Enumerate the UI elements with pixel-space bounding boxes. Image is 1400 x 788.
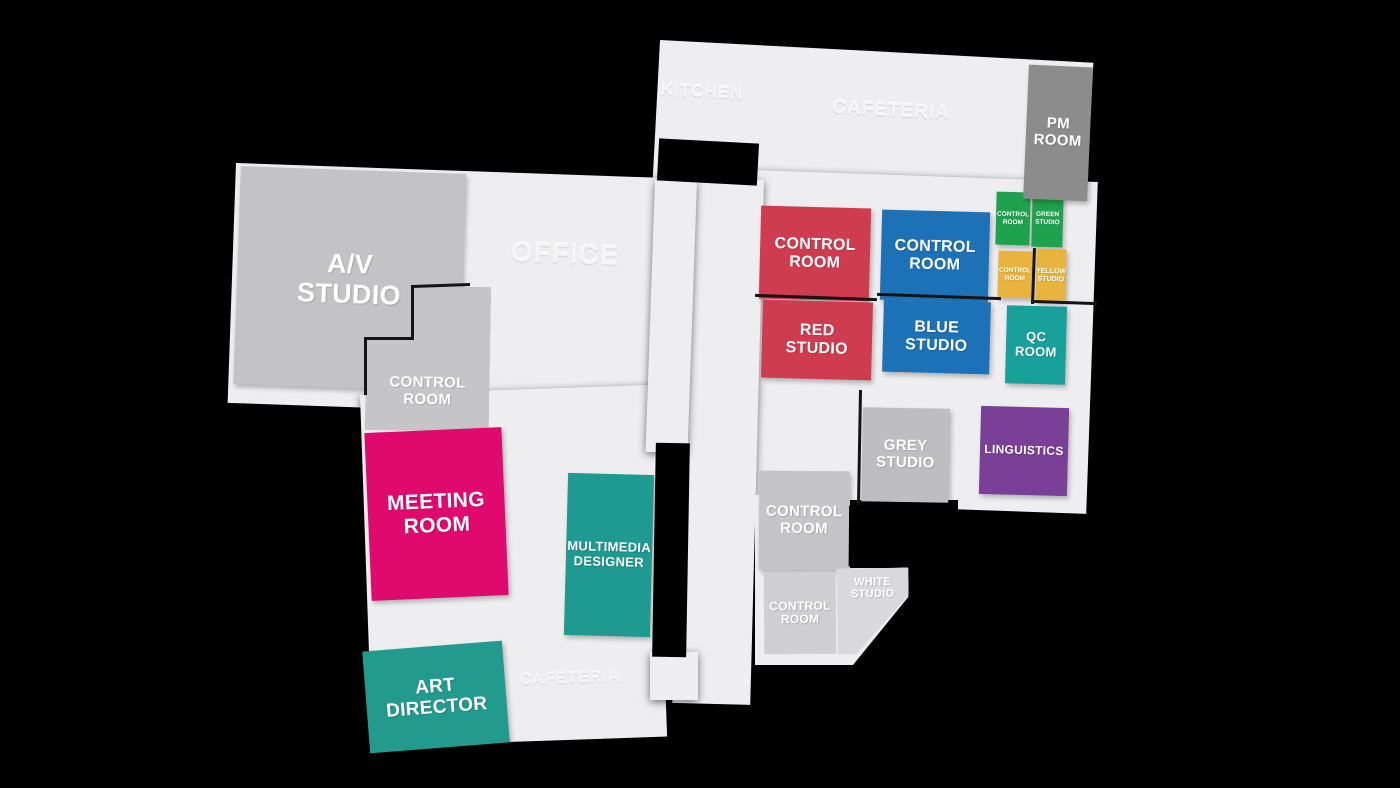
room-label: YELLOW STUDIO (1036, 267, 1066, 283)
room-multimedia-designer: MULTIMEDIA DESIGNER (564, 473, 654, 637)
floor-connector-south (650, 652, 698, 700)
room-label: RED STUDIO (785, 321, 848, 358)
room-control-room-center: CONTROL ROOM (759, 471, 850, 571)
room-label: BLUE STUDIO (905, 318, 968, 355)
room-label: CONTROL ROOM (999, 267, 1032, 282)
room-label: ART DIRECTOR (384, 672, 488, 722)
room-art-director: ART DIRECTOR (362, 641, 510, 754)
room-label: CONTROL ROOM (766, 503, 843, 537)
floor-plan-map: KITCHEN CAFETERIA OFFICE CAFETERIA A/V S… (0, 0, 1400, 788)
room-label: A/V STUDIO (297, 247, 403, 311)
floor-cutout-top (657, 138, 759, 185)
room-pm-room: PM ROOM (1023, 65, 1093, 202)
wall-line (365, 337, 413, 340)
room-blue-control-room: CONTROL ROOM (880, 210, 990, 303)
room-label: CONTROL ROOM (997, 211, 1030, 226)
room-qc-room: QC ROOM (1005, 305, 1067, 385)
room-yellow-studio: YELLOW STUDIO (1035, 249, 1066, 303)
room-label: MEETING ROOM (387, 488, 487, 539)
room-meeting-room: MEETING ROOM (364, 427, 508, 601)
floor-cutout-grey-south (850, 500, 958, 568)
room-label: PM ROOM (1033, 115, 1082, 151)
room-label: CONTROL ROOM (769, 599, 831, 626)
room-label: GREEN STUDIO (1035, 211, 1060, 226)
room-label: WHITE STUDIO (836, 575, 908, 601)
room-label: CONTROL ROOM (894, 237, 976, 275)
area-label-office: OFFICE (499, 236, 630, 273)
room-grey-studio: GREY STUDIO (861, 407, 950, 503)
room-green-control-room: CONTROL ROOM (995, 192, 1030, 246)
room-label: MULTIMEDIA DESIGNER (567, 539, 651, 570)
room-label: GREY STUDIO (876, 438, 935, 473)
wall-line (411, 285, 414, 340)
floor-cutout-center (652, 443, 690, 658)
room-label: CONTROL ROOM (365, 374, 490, 410)
room-red-studio: RED STUDIO (761, 300, 873, 381)
room-control-room-south: CONTROL ROOM (764, 572, 837, 655)
room-red-control-room: CONTROL ROOM (759, 206, 871, 302)
room-label: QC ROOM (1015, 330, 1057, 360)
room-label: LINGUISTICS (984, 443, 1064, 459)
wall-line (364, 337, 367, 395)
room-blue-studio: BLUE STUDIO (882, 300, 991, 375)
room-white-studio: WHITE STUDIO (836, 567, 909, 654)
room-label: CONTROL ROOM (774, 235, 856, 273)
room-yellow-control-room: CONTROL ROOM (997, 251, 1032, 299)
room-linguistics: LINGUISTICS (979, 406, 1069, 496)
